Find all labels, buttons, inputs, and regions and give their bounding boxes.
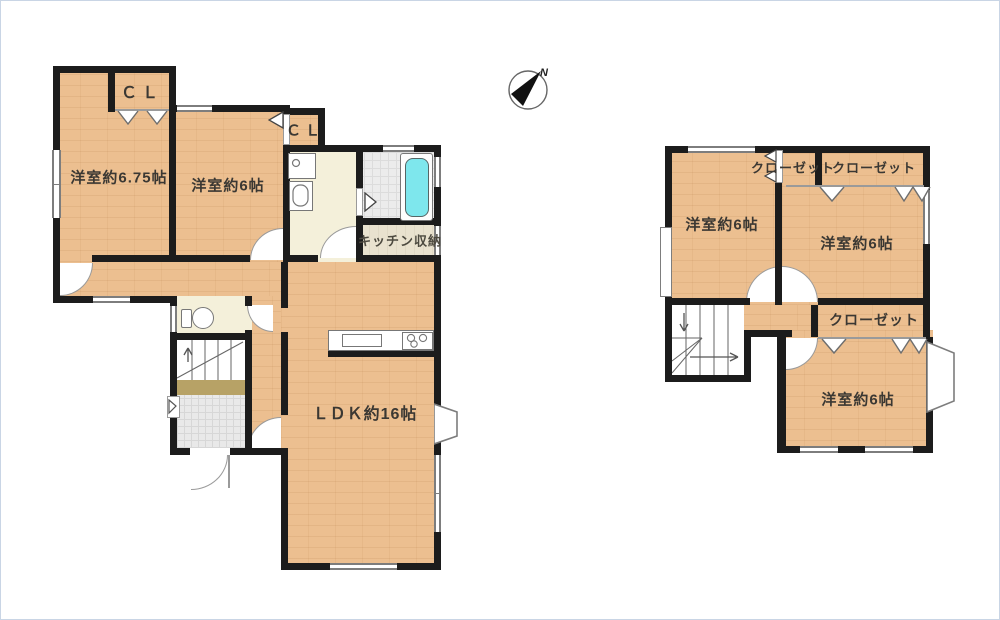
closet-cl1-bifold-icon (116, 110, 170, 126)
closet-2f-b-bifold-icon-1 (818, 186, 846, 203)
window-2f-top (688, 146, 755, 153)
bathroom-door (356, 188, 363, 216)
window-room675-left (52, 150, 61, 218)
label-room-675: 洋室約6.75帖 (70, 167, 167, 188)
label-ldk: ＬＤＫ約16帖 (313, 400, 418, 424)
window-2f-left-sill (660, 227, 672, 297)
floor-plan-image: 洋室約6.75帖 洋室約6帖 ＣＬ ＣＬ キッチン収納 ＬＤＫ約16帖 N (0, 0, 1000, 620)
stairs-treads-1f (177, 340, 245, 380)
toilet-bowl-icon (192, 307, 214, 329)
closet-2f-mid-bifold-icon-2 (890, 338, 928, 355)
label-kitchen-storage: キッチン収納 (358, 231, 442, 250)
stairs-treads-2f (672, 305, 744, 375)
kitchen-sink-icon (342, 334, 382, 347)
window-hallway-bottom (93, 296, 130, 303)
label-closet-2f-b: クローゼット (832, 158, 916, 177)
label-room-2f-e: 洋室約6帖 (820, 233, 893, 254)
compass-icon: N (504, 63, 556, 115)
washbasin-icon (289, 181, 313, 211)
window-bathroom-right (434, 157, 441, 187)
genkan-tile (177, 395, 245, 448)
closet-2f-b-bifold-icon-2 (893, 186, 931, 203)
window-toilet-left (170, 306, 177, 332)
label-room-2f-se: 洋室約6帖 (821, 389, 894, 410)
staircase-2f (672, 305, 744, 375)
door-leaf-room6-icon (268, 111, 284, 129)
window-2f-room-se-bottom-1 (800, 446, 838, 453)
window-ldk-right (434, 455, 441, 532)
window-ldk-bottom (330, 563, 397, 570)
window-2f-room-se-bottom-2 (865, 446, 913, 453)
genkan-side-door (167, 396, 180, 418)
staircase-1f (177, 340, 245, 380)
entrance-porch-line (228, 455, 230, 488)
bathroom-door-triangle-icon (364, 192, 378, 212)
stove-icon (402, 332, 433, 350)
label-closet-2f-a: クローゼット (751, 158, 835, 177)
bay-window-room-se (926, 341, 958, 413)
toilet-tank-icon (181, 309, 192, 328)
label-cl1: ＣＬ (121, 79, 163, 103)
compass-north-label: N (540, 67, 549, 79)
genkan-step (177, 380, 245, 395)
bathtub-icon (400, 153, 433, 221)
closet-2f-mid-bifold-icon-1 (820, 338, 848, 355)
window-bathroom-top (383, 145, 414, 152)
label-room-2f-nw: 洋室約6帖 (685, 214, 758, 235)
label-cl2: ＣＬ (286, 120, 324, 141)
window-room6-top (177, 105, 212, 112)
label-closet-2f-mid: クローゼット (829, 310, 919, 330)
door-arc-entrance (191, 455, 228, 490)
label-room-6: 洋室約6帖 (191, 175, 264, 196)
washroom-sink-icon (288, 153, 316, 179)
bay-window-ldk (434, 403, 464, 445)
